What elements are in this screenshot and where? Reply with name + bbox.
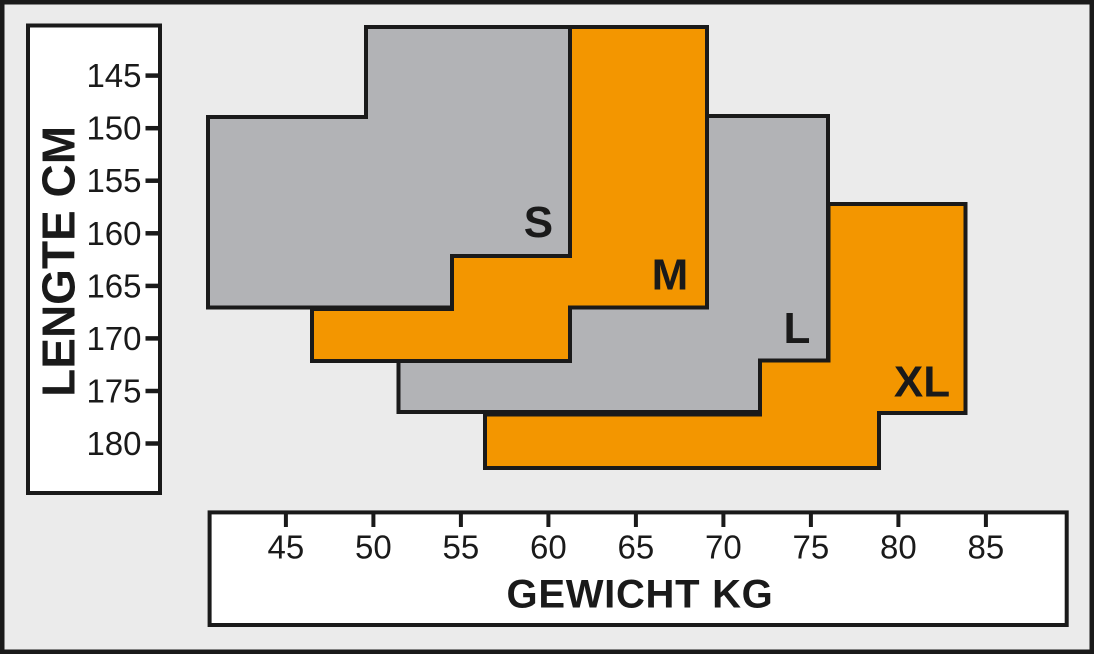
- svg-text:85: 85: [968, 529, 1005, 566]
- svg-text:50: 50: [355, 529, 392, 566]
- svg-text:175: 175: [86, 373, 141, 410]
- svg-text:GEWICHT KG: GEWICHT KG: [507, 573, 774, 617]
- svg-text:45: 45: [268, 529, 305, 566]
- svg-text:170: 170: [86, 320, 141, 357]
- svg-text:L: L: [784, 304, 811, 353]
- svg-text:160: 160: [86, 215, 141, 252]
- svg-text:155: 155: [86, 162, 141, 199]
- svg-text:XL: XL: [894, 358, 950, 407]
- svg-text:165: 165: [86, 267, 141, 304]
- svg-text:55: 55: [443, 529, 480, 566]
- svg-text:LENGTE CM: LENGTE CM: [33, 126, 85, 397]
- svg-text:150: 150: [86, 110, 141, 147]
- svg-text:145: 145: [86, 57, 141, 94]
- svg-text:65: 65: [618, 529, 655, 566]
- svg-text:60: 60: [530, 529, 567, 566]
- svg-text:M: M: [652, 250, 689, 299]
- svg-text:70: 70: [705, 529, 742, 566]
- svg-text:80: 80: [880, 529, 917, 566]
- svg-text:S: S: [524, 198, 553, 247]
- svg-text:180: 180: [86, 425, 141, 462]
- svg-text:75: 75: [793, 529, 830, 566]
